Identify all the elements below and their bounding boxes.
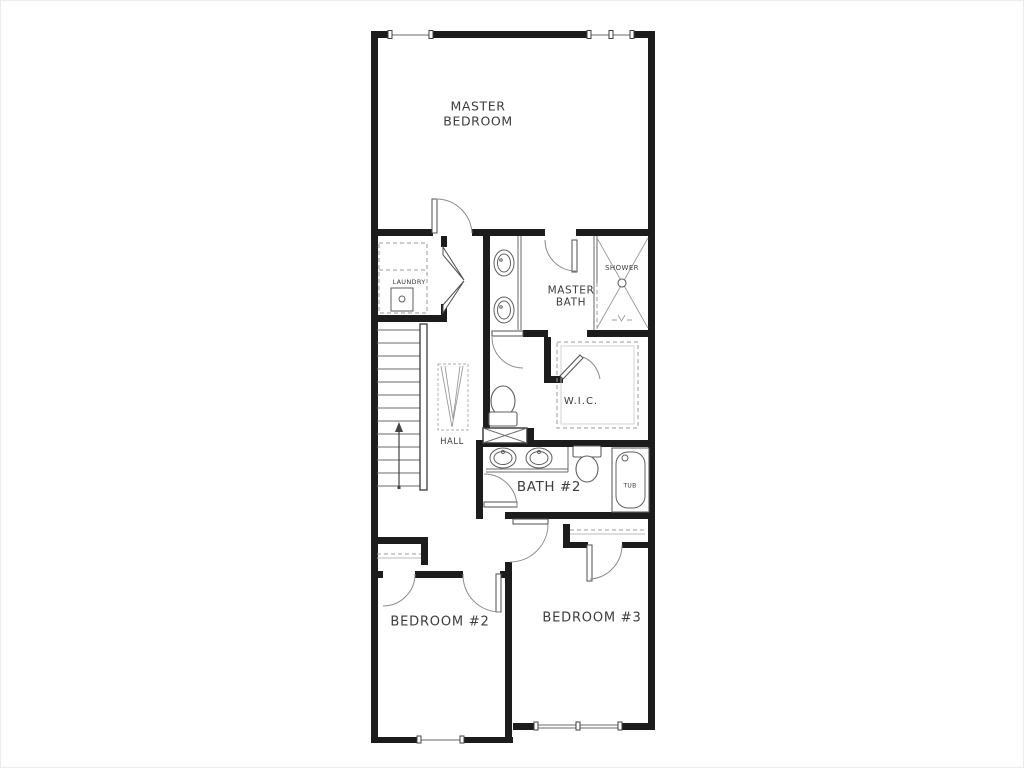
stairs-up-arrow [395,422,403,489]
room-label-master-bedroom: MASTER BEDROOM [443,99,512,129]
stair-railing [420,324,427,490]
master-vanity [494,236,521,330]
master-bedroom-door [432,199,472,233]
wic-shelves [557,342,638,428]
room-label-bath2: BATH #2 [517,480,581,496]
bedroom3-closet-shelf [570,530,645,534]
room-label-laundry: LAUNDRY [392,279,425,287]
room-label-bedroom3: BEDROOM #3 [542,610,641,625]
bifold-doors [443,247,464,313]
bedroom2-closet-door [383,574,415,606]
toilet-room-fixtures [489,386,517,426]
room-label-bedroom2: BEDROOM #2 [390,614,489,629]
linen-closet [483,428,527,443]
bath2-vanity [486,447,568,472]
bedroom3-closet-door [587,545,622,581]
stairs [377,324,468,490]
floor-plan: MASTER BEDROOM LAUNDRY MASTER BATH SHOWE… [0,0,1024,768]
toilet-room-door [492,331,523,368]
master-bath-door [545,240,577,272]
room-label-shower: SHOWER [605,264,639,272]
window-bedroom2 [417,736,464,744]
window-bedroom3 [534,722,622,731]
bedroom2-door [463,574,501,612]
exterior-walls [371,31,655,743]
bedroom3-door [510,519,548,562]
appliance [391,288,413,311]
bath2-door [484,474,517,507]
window-master-bedroom-left [388,30,433,39]
room-label-hall: HALL [440,437,464,447]
shower-drain [618,279,626,287]
shower-stall [594,236,648,330]
room-label-tub: TUB [623,482,636,489]
window-master-bedroom-right [587,30,634,39]
bathtub [612,448,649,512]
toilet [573,446,601,457]
shower-valve [612,315,632,321]
bedroom2-closet-shelf [377,554,421,558]
room-label-wic: W.I.C. [564,396,598,408]
wic-door [560,355,600,379]
room-label-master-bath: MASTER BATH [548,285,595,310]
bath2-toilet [573,446,601,482]
hall-open-rail-marker [438,364,468,430]
